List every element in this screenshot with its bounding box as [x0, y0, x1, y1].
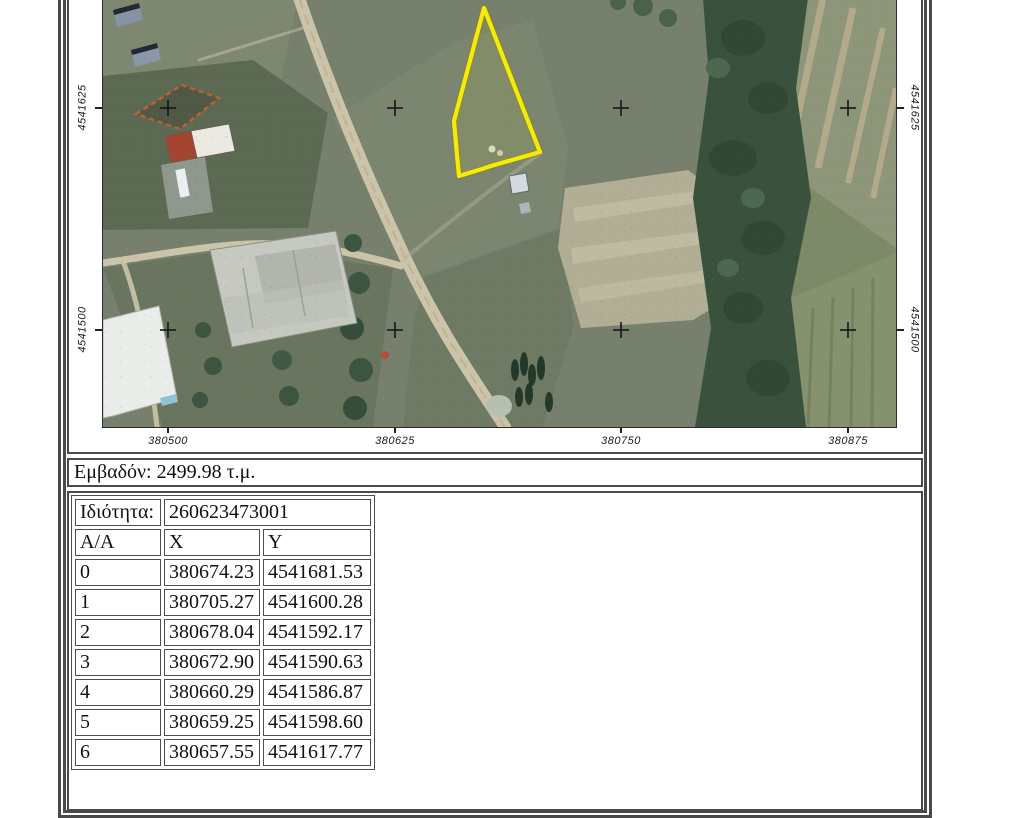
x-axis-label: 380625	[360, 435, 430, 447]
property-value: 260623473001	[164, 499, 371, 526]
property-label: Ιδιότητα:	[75, 499, 161, 526]
vertex-index: 0	[75, 559, 161, 586]
vertex-index: 4	[75, 679, 161, 706]
vertex-y: 4541681.53	[263, 559, 371, 586]
coordinates-panel: Ιδιότητα: 260623473001 Α/ΑXY 0380674.234…	[67, 491, 923, 811]
map-panel: 380500380625380750380875 454162545416254…	[67, 0, 923, 454]
vertex-index: 6	[75, 739, 161, 766]
vertex-y: 4541592.17	[263, 619, 371, 646]
vertex-y: 4541586.87	[263, 679, 371, 706]
vertex-index: 1	[75, 589, 161, 616]
coords-row: 0380674.234541681.53	[75, 559, 371, 586]
coords-col-header: Y	[263, 529, 371, 556]
coords-col-header: Α/Α	[75, 529, 161, 556]
vertex-x: 380678.04	[164, 619, 260, 646]
y-axis-tick	[95, 329, 102, 331]
coords-row: 5380659.254541598.60	[75, 709, 371, 736]
vertex-x: 380672.90	[164, 649, 260, 676]
x-axis-label: 380500	[133, 435, 203, 447]
y-axis-label: 4541500	[908, 295, 921, 365]
coords-header-row: Α/ΑXY	[75, 529, 371, 556]
coords-row: 1380705.274541600.28	[75, 589, 371, 616]
area-summary-bar: Εμβαδόν: 2499.98 τ.μ.	[67, 458, 923, 487]
survey-document-page: 380500380625380750380875 454162545416254…	[58, 0, 932, 818]
coords-row: 4380660.294541586.87	[75, 679, 371, 706]
vertex-x: 380705.27	[164, 589, 260, 616]
y-axis-label: 4541500	[77, 295, 90, 365]
x-axis-tick	[620, 427, 622, 433]
satellite-map	[102, 0, 897, 428]
vertex-x: 380657.55	[164, 739, 260, 766]
x-axis-tick	[847, 427, 849, 433]
coords-col-header: X	[164, 529, 260, 556]
vertex-index: 3	[75, 649, 161, 676]
x-axis-label: 380875	[813, 435, 883, 447]
vertex-index: 5	[75, 709, 161, 736]
y-axis-label: 4541625	[908, 73, 921, 143]
satellite-map-svg	[103, 0, 896, 427]
coords-row: 2380678.044541592.17	[75, 619, 371, 646]
vertex-y: 4541617.77	[263, 739, 371, 766]
coordinates-table: Ιδιότητα: 260623473001 Α/ΑXY 0380674.234…	[71, 495, 375, 770]
y-axis-tick	[95, 107, 102, 109]
coords-row: 3380672.904541590.63	[75, 649, 371, 676]
x-axis-tick	[167, 427, 169, 433]
vertex-y: 4541598.60	[263, 709, 371, 736]
vertex-y: 4541600.28	[263, 589, 371, 616]
vertex-index: 2	[75, 619, 161, 646]
vertex-x: 380660.29	[164, 679, 260, 706]
coords-row: 6380657.554541617.77	[75, 739, 371, 766]
property-row: Ιδιότητα: 260623473001	[75, 499, 371, 526]
y-axis-label: 4541625	[77, 73, 90, 143]
y-axis-tick	[897, 329, 904, 331]
vertex-x: 380659.25	[164, 709, 260, 736]
x-axis-tick	[394, 427, 396, 433]
area-summary-text: Εμβαδόν: 2499.98 τ.μ.	[74, 461, 255, 483]
vertex-y: 4541590.63	[263, 649, 371, 676]
vertex-x: 380674.23	[164, 559, 260, 586]
y-axis-tick	[897, 107, 904, 109]
x-axis-label: 380750	[586, 435, 656, 447]
